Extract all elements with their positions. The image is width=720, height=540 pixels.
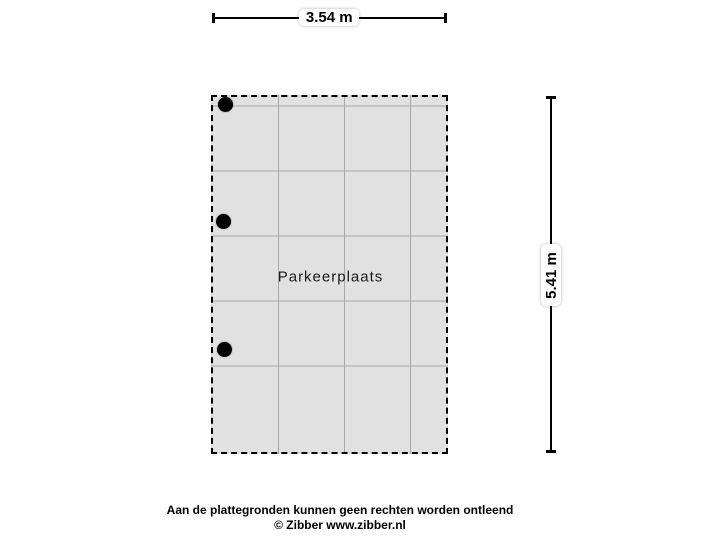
width-dimension-text: 3.54 m xyxy=(306,9,353,26)
parking-room: Parkeerplaats xyxy=(211,95,448,454)
dimension-tick-right xyxy=(444,13,447,23)
marker-dot xyxy=(218,97,233,112)
dimension-tick-top xyxy=(546,96,556,99)
dimension-tick-left xyxy=(212,13,215,23)
dimension-tick-bottom xyxy=(546,450,556,453)
footer: Aan de plattegronden kunnen geen rechten… xyxy=(167,503,514,533)
width-dimension: 3.54 m xyxy=(212,13,448,23)
room-label: Parkeerplaats xyxy=(278,268,384,285)
marker-dot xyxy=(216,214,231,229)
height-dimension: 5.41 m xyxy=(546,95,556,454)
width-dimension-label: 3.54 m xyxy=(299,9,359,26)
marker-dot xyxy=(217,342,232,357)
height-dimension-text: 5.41 m xyxy=(543,252,560,299)
copyright-text: © Zibber www.zibber.nl xyxy=(167,518,514,533)
floorplan-canvas: 3.54 m 5.41 m Parkeerplaats Aan de platt… xyxy=(0,0,720,540)
disclaimer-text: Aan de plattegronden kunnen geen rechten… xyxy=(167,503,514,518)
height-dimension-label: 5.41 m xyxy=(541,244,561,306)
